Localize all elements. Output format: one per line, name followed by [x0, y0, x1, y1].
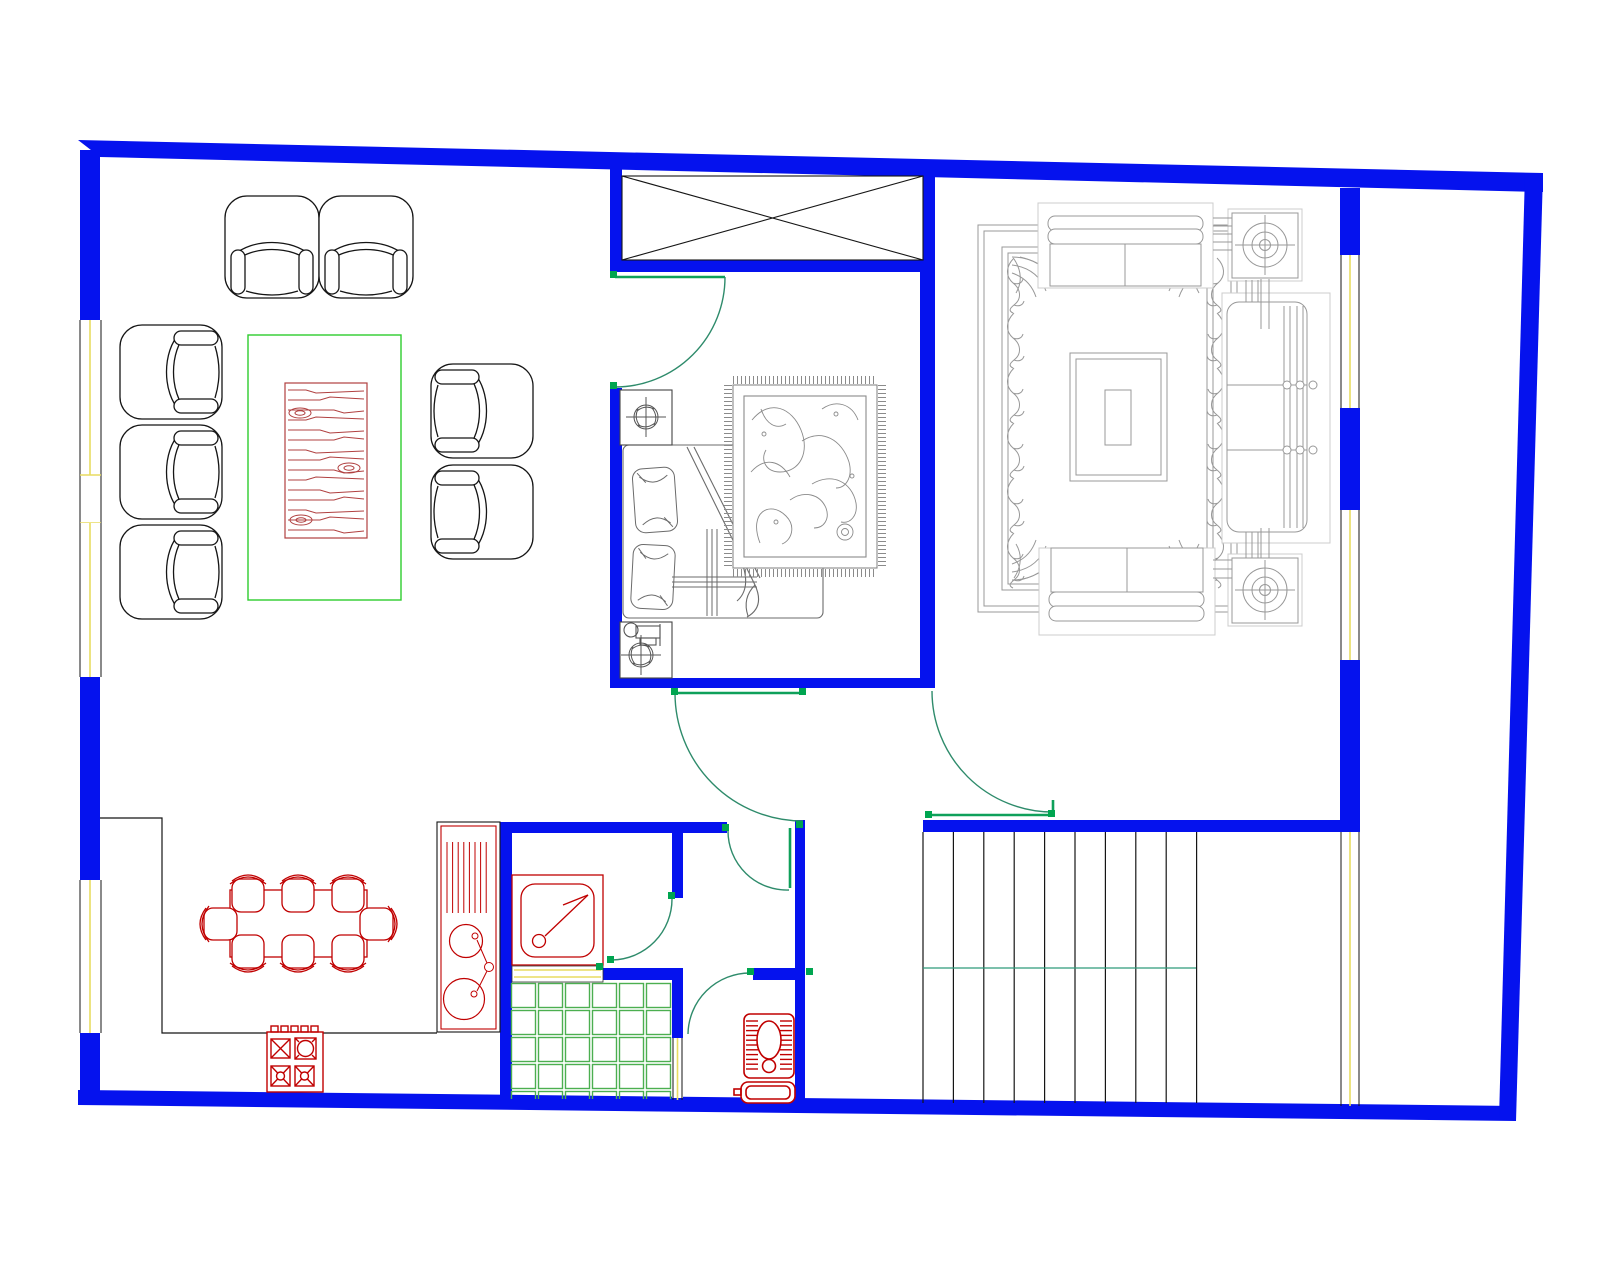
- dining-chair-4: [230, 935, 266, 972]
- dining-chair-5: [280, 935, 316, 972]
- stair-top-wall: [923, 820, 1343, 832]
- dining-chair-2: [280, 875, 316, 912]
- chesterfield-sofa: [1222, 293, 1330, 543]
- sofa-seat-1: [120, 325, 222, 419]
- window-left-gap: [78, 475, 103, 523]
- window-bath-inner: [672, 1038, 683, 1100]
- door-living-room: [928, 691, 1053, 815]
- wall-left-seg3: [80, 1033, 100, 1105]
- dining-chair-3: [330, 875, 366, 912]
- armchair-3: [431, 364, 533, 458]
- coffee-table-wood-top: [285, 383, 367, 538]
- toilet-tank: [741, 1082, 795, 1103]
- floor-plan-drawing: [0, 0, 1600, 1280]
- dining-chair-7: [200, 906, 237, 942]
- closet: [622, 176, 923, 260]
- sofa-seat-3: [120, 525, 222, 619]
- door-bedroom-entry: [615, 277, 725, 387]
- bathroom-top-wall: [500, 822, 727, 833]
- sink-counter: [437, 822, 500, 1032]
- bedroom: [620, 380, 882, 678]
- bathroom-left-wall: [500, 822, 512, 1105]
- sofa-top: [1038, 203, 1213, 288]
- bedroom-rug: [728, 380, 882, 573]
- nightstand-bottom: [620, 622, 672, 678]
- door-shower-room: [612, 899, 672, 960]
- door-hall: [675, 693, 803, 821]
- living-room: [978, 203, 1330, 635]
- staircase: [923, 832, 1197, 1103]
- door-bathroom: [728, 828, 790, 890]
- bath-inner-wall-a1: [672, 833, 683, 898]
- sofa-bottom: [1039, 548, 1215, 635]
- kitchen: [100, 818, 500, 1092]
- wall-left-seg2: [80, 677, 100, 880]
- wall-right-inner-seg2: [1340, 408, 1360, 510]
- left-wall-windows: [78, 320, 103, 1033]
- bath-inner-wall-b1: [603, 968, 683, 980]
- window-left-2: [78, 523, 103, 677]
- squat-toilet: [734, 1014, 795, 1103]
- coffee-table-border: [248, 335, 401, 600]
- window-left-1: [78, 320, 103, 475]
- armchair-2: [319, 196, 413, 298]
- door-wc: [688, 973, 750, 1034]
- lr-coffee-table: [1070, 353, 1167, 481]
- bathroom: [512, 875, 796, 1116]
- floor-plan-canvas: [0, 0, 1600, 1280]
- sofa-seat-2: [120, 425, 222, 519]
- pillow-2: [630, 544, 675, 610]
- wall-right-outer: [1499, 173, 1543, 1121]
- speaker-table-bottom: [1228, 554, 1302, 626]
- lounge: [120, 196, 533, 619]
- wood-grain-lines: [288, 390, 364, 533]
- speaker-table-top: [1228, 209, 1302, 281]
- wall-right-inner-seg3: [1340, 660, 1360, 832]
- window-left-3: [78, 880, 103, 1033]
- window-right-3: [1341, 832, 1359, 1106]
- closet-bottom-wall: [610, 260, 935, 272]
- shower-curb: [512, 966, 603, 982]
- floor-tiles: [512, 984, 671, 1116]
- dining-chair-6: [330, 935, 366, 972]
- window-right-2: [1341, 510, 1359, 660]
- nightstand-top: [620, 390, 672, 445]
- closet-left-wall: [610, 155, 622, 272]
- dining-chair-8: [360, 906, 397, 942]
- wall-right-inner-seg1: [1340, 188, 1360, 255]
- wall-left-seg1: [80, 150, 100, 320]
- pillow-1: [632, 467, 678, 534]
- wc-right-wall: [795, 820, 805, 1105]
- dining-chair-1: [230, 875, 266, 912]
- window-right-1: [1341, 255, 1359, 408]
- stove: [267, 1026, 323, 1092]
- dining-set: [200, 875, 397, 972]
- bedroom-bottom-wall: [610, 678, 935, 688]
- shower-tray: [512, 875, 603, 965]
- armchair-1: [225, 196, 319, 298]
- armchair-4: [431, 465, 533, 559]
